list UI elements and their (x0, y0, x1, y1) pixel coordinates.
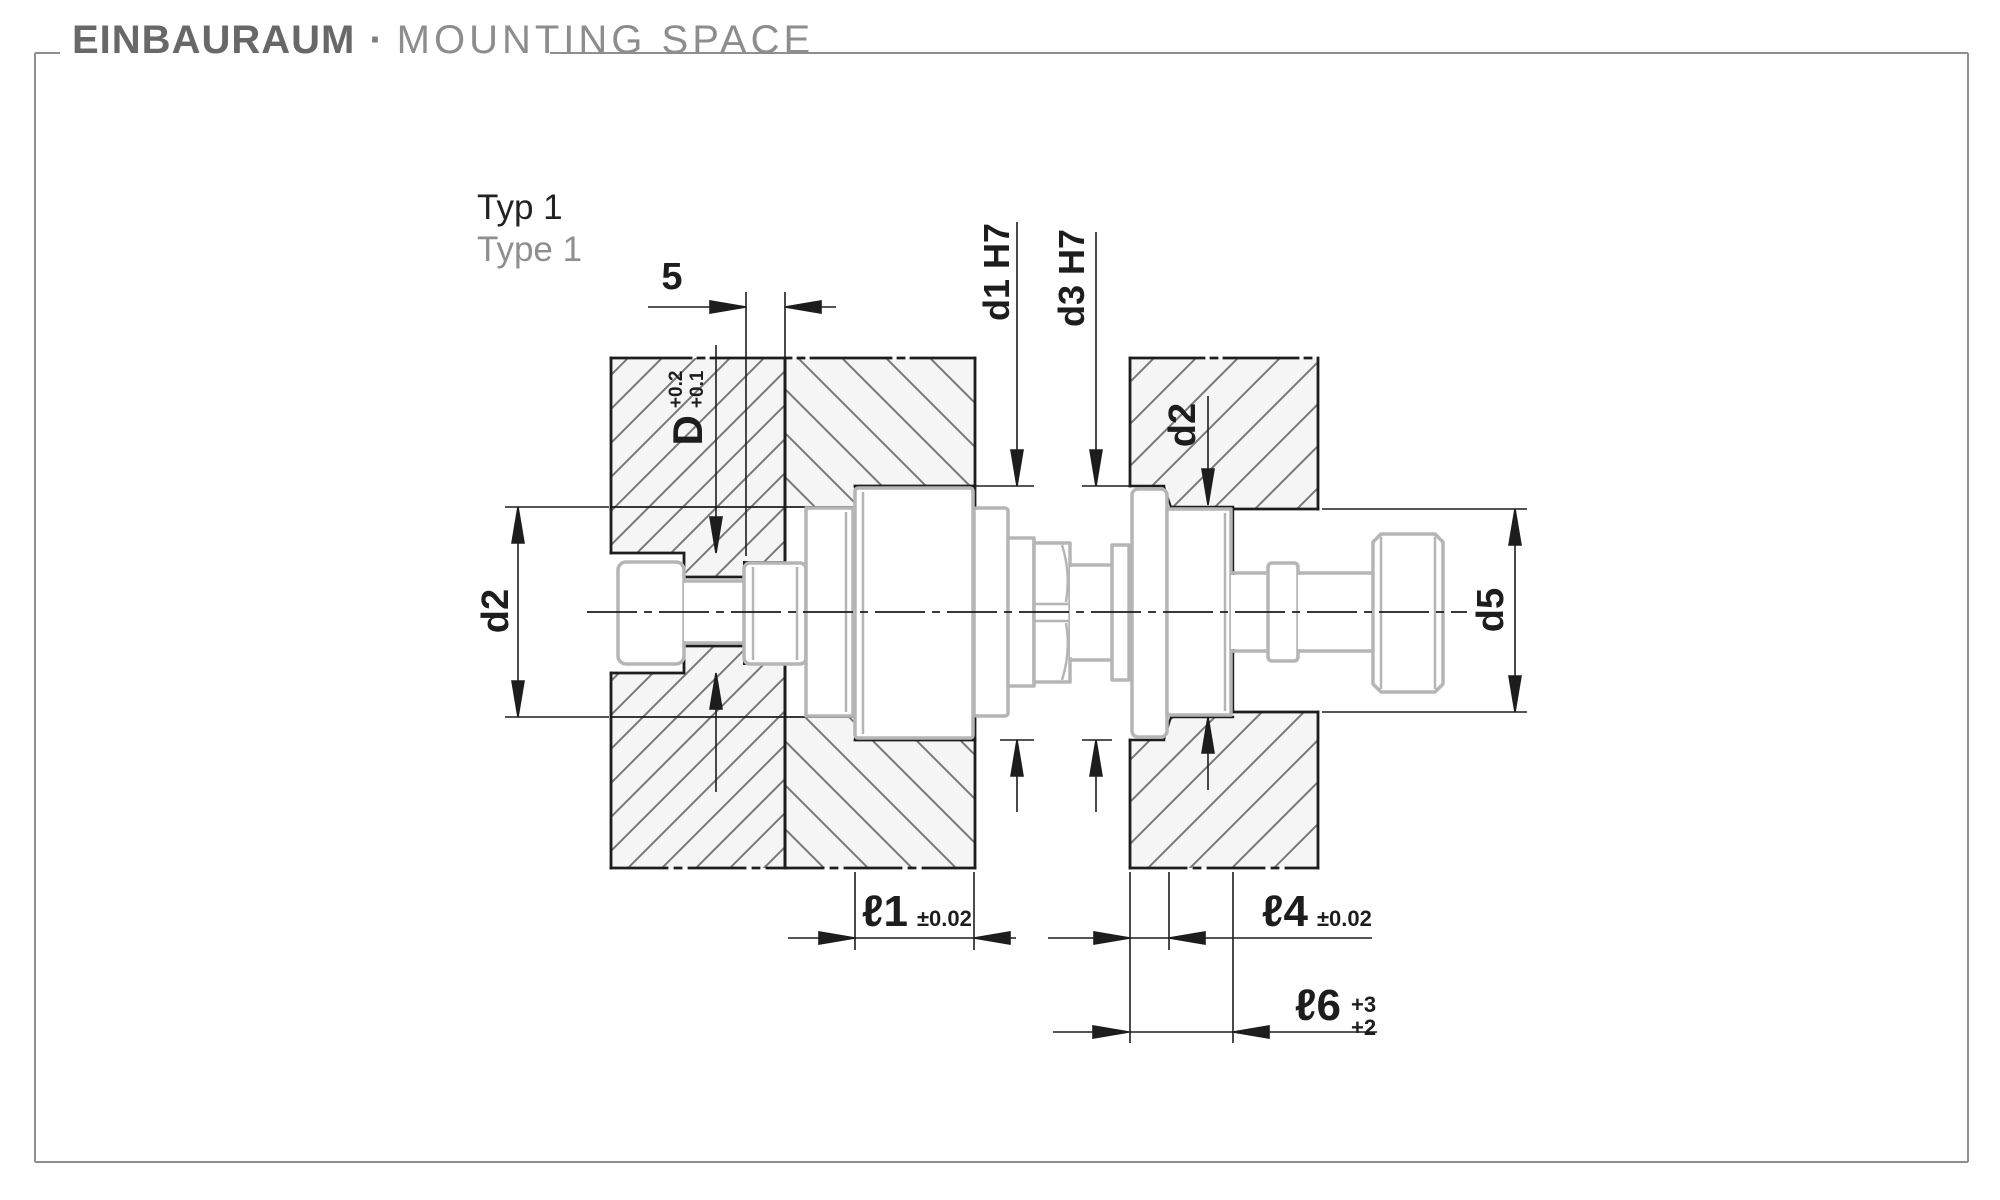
title-german: EINBAURAUM (72, 18, 355, 63)
dim-label-l4: ℓ4 ±0.02 (1262, 890, 1372, 934)
dim-label-d1-H7: d1 H7 (977, 207, 1017, 337)
dim-label-l6-tolerances: +3 +2 (1351, 993, 1376, 1039)
dim-label-d5: d5 (1469, 570, 1513, 650)
variant-label-german: Typ 1 (477, 188, 563, 228)
title-separator-dot: · (369, 18, 382, 63)
dim-label-l1: ℓ1 ±0.02 (862, 890, 972, 934)
dim-label-D-tolerances: +0.2 +0.1 (667, 371, 709, 409)
dim-label-D-symbol: D (667, 415, 709, 445)
dim-label-d2-right: d2 (1161, 385, 1205, 465)
component-knob (1373, 534, 1443, 692)
component-body (855, 488, 973, 738)
page-title: EINBAURAUM · MOUNTING SPACE (72, 18, 814, 62)
dim-label-l6: ℓ6 +3 +2 (1295, 984, 1376, 1047)
dim-label-D: D +0.2 +0.1 (664, 338, 712, 478)
technical-drawing (0, 0, 2000, 1200)
dim-label-d2-left: d2 (474, 571, 518, 651)
dim-label-5: 5 (652, 256, 692, 299)
component-head-left (618, 562, 684, 664)
dim-label-d3-H7: d3 H7 (1052, 213, 1092, 343)
mounting-space-drawing-page: EINBAURAUM · MOUNTING SPACE Typ 1 Type 1… (0, 0, 2000, 1200)
variant-label-english: Type 1 (477, 230, 582, 270)
title-english: MOUNTING SPACE (397, 18, 815, 63)
bushing-flange (1132, 489, 1167, 737)
